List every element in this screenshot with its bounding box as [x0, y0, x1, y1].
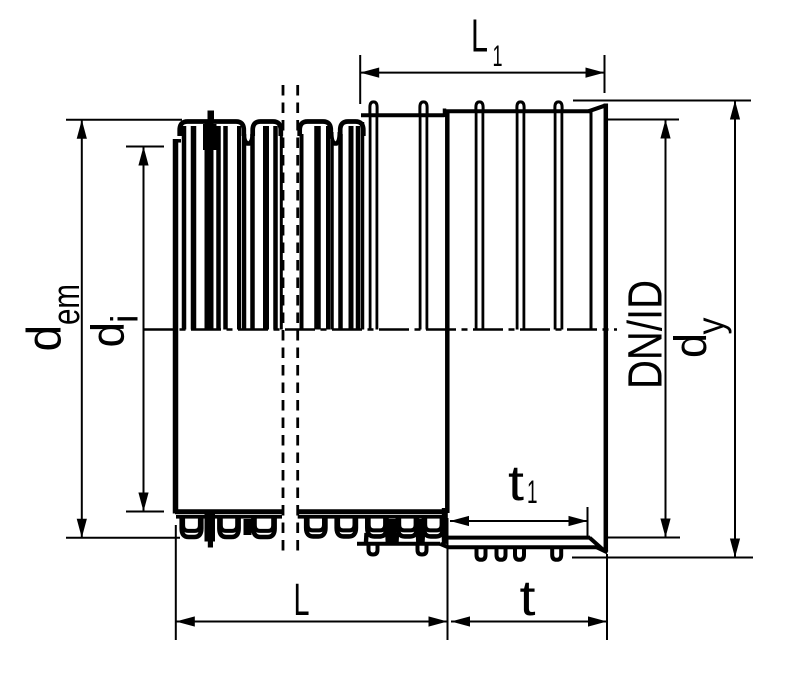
- svg-text:1: 1: [527, 474, 538, 510]
- svg-text:d: d: [665, 333, 716, 358]
- svg-text:L: L: [294, 574, 310, 625]
- svg-text:em: em: [46, 284, 88, 325]
- svg-text:i: i: [105, 315, 147, 323]
- svg-text:d: d: [82, 322, 134, 348]
- svg-text:t: t: [520, 570, 536, 626]
- svg-text:d: d: [18, 325, 71, 352]
- svg-text:L: L: [471, 10, 488, 62]
- svg-text:1: 1: [493, 40, 503, 73]
- svg-text:t: t: [508, 455, 524, 511]
- svg-text:y: y: [691, 318, 733, 335]
